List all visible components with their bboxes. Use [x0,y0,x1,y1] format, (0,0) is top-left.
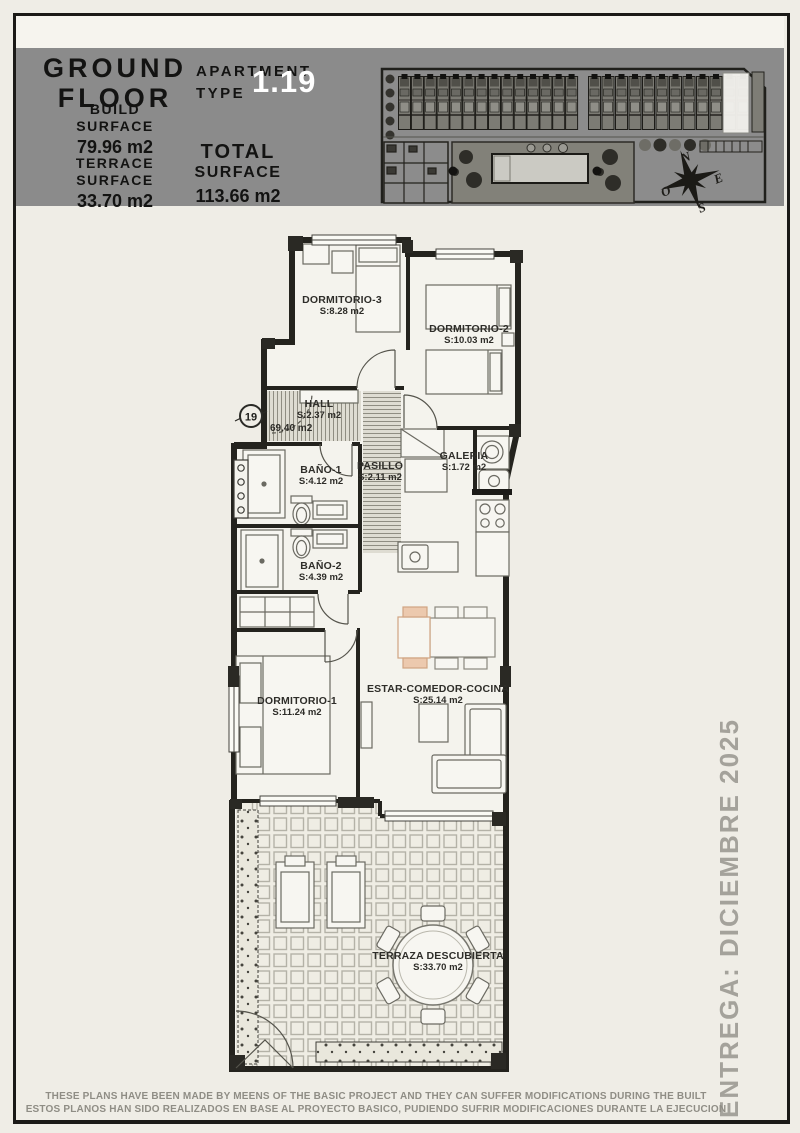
disclaimer: THESE PLANS HAVE BEEN MADE BY MEENS OF T… [18,1091,734,1116]
unit-total-area: 69.40 m2 [270,423,312,434]
planting-strip [238,810,258,1064]
room-label-galeria: GALERIA S:1.72 m2 [440,451,489,474]
room-label-bano-2: BAÑO-2 S:4.39 m2 [299,561,343,584]
room-label-estar-comedor-cocina: ESTAR-COMEDOR-COCINA S:25.14 m2 [367,684,509,707]
pool [492,154,588,183]
floor-plan-page: N E S O [0,0,800,1133]
room-label-dormitorio-1: DORMITORIO-1 S:11.24 m2 [257,696,337,719]
site-clubhouse [384,142,448,203]
wardrobe [240,597,314,627]
room-label-dormitorio-2: DORMITORIO-2 S:10.03 m2 [429,324,509,347]
room-label-dormitorio-3: DORMITORIO-3 S:8.28 m2 [302,295,382,318]
site-plan-miniature [382,69,765,203]
delivery-note: ENTREGA: DICIEMBRE 2025 [714,676,745,1118]
table-extension [398,617,430,658]
galeria-counter [472,489,512,495]
sun-lounger [276,856,314,928]
room-label-hall: HALL S:2.37 m2 [297,399,341,422]
total-surface: TOTAL SURFACE 113.66 m2 [168,141,308,207]
room-label-pasillo: PASILLO S:2.11 m2 [357,461,403,484]
total-surface-value: 113.66 m2 [168,186,308,207]
sun-lounger [327,856,365,928]
disclaimer-line-es: ESTOS PLANOS HAN SIDO REALIZADOS EN BASE… [18,1104,734,1117]
planter-box [316,1042,502,1062]
room-label-bano-1: BAÑO-1 S:4.12 m2 [299,465,343,488]
dining-set [398,607,495,669]
terrace-floor [236,803,503,1066]
unit-number: 19 [245,412,257,424]
installation-shaft [234,460,248,518]
disclaimer-line-en: THESE PLANS HAVE BEEN MADE BY MEENS OF T… [18,1091,734,1104]
room-label-terraza-descubierta: TERRAZA DESCUBIERTA S:33.70 m2 [372,951,504,974]
apartment-number: 1.19 [252,64,316,100]
site-units-block-a [399,74,578,130]
highlighted-unit [723,73,749,133]
